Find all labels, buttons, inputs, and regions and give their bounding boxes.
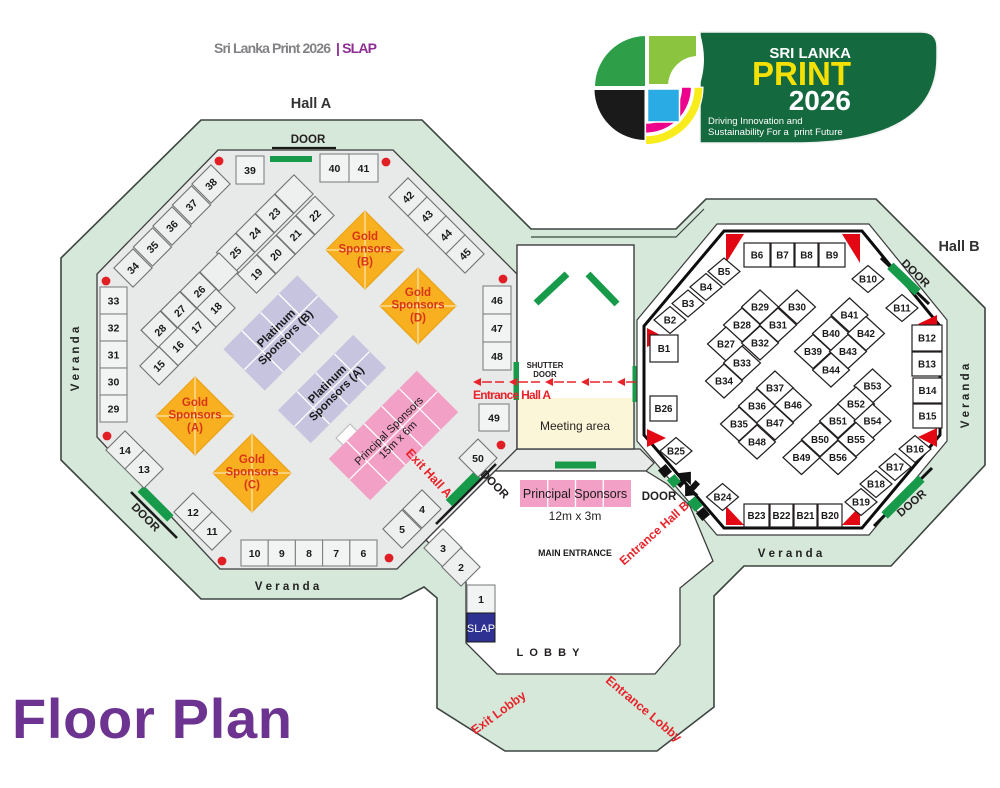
svg-text:Hall A: Hall A (291, 96, 332, 112)
svg-text:B17: B17 (886, 463, 905, 474)
svg-text:4: 4 (419, 504, 425, 516)
svg-text:B40: B40 (822, 329, 841, 340)
svg-text:B44: B44 (822, 366, 841, 377)
svg-text:2: 2 (458, 562, 464, 574)
svg-text:B36: B36 (748, 402, 767, 413)
svg-text:39: 39 (244, 165, 256, 177)
svg-text:B11: B11 (893, 304, 911, 315)
svg-text:| SLAP: | SLAP (336, 40, 377, 56)
svg-text:B29: B29 (751, 303, 770, 314)
svg-text:B41: B41 (841, 311, 860, 322)
svg-text:B2: B2 (664, 316, 677, 327)
svg-text:40: 40 (329, 163, 341, 175)
svg-text:Sustainability For a print Fu: Sustainability For a print Future (708, 127, 843, 138)
svg-text:B28: B28 (733, 321, 752, 332)
svg-text:B35: B35 (730, 420, 749, 431)
svg-text:B33: B33 (733, 359, 752, 370)
svg-text:B24: B24 (714, 493, 733, 504)
svg-text:Entrance Hall A: Entrance Hall A (473, 388, 551, 402)
svg-text:B13: B13 (918, 360, 937, 371)
svg-text:B46: B46 (784, 401, 803, 412)
svg-text:Gold: Gold (182, 397, 208, 409)
svg-text:V e r a n d a: V e r a n d a (255, 581, 320, 593)
svg-text:41: 41 (358, 163, 370, 175)
svg-text:B9: B9 (826, 251, 839, 262)
svg-text:V e r a n d a: V e r a n d a (758, 548, 823, 560)
svg-text:B16: B16 (906, 445, 925, 456)
svg-text:B43: B43 (839, 347, 858, 358)
svg-text:30: 30 (108, 376, 120, 388)
svg-text:5: 5 (399, 524, 405, 536)
svg-text:B55: B55 (847, 435, 866, 446)
svg-text:50: 50 (472, 453, 484, 465)
svg-text:3: 3 (440, 543, 446, 555)
svg-text:B50: B50 (811, 435, 830, 446)
svg-text:B49: B49 (793, 453, 812, 464)
svg-text:B53: B53 (864, 382, 883, 393)
svg-text:MAIN ENTRANCE: MAIN ENTRANCE (538, 548, 612, 558)
svg-text:12: 12 (187, 507, 199, 519)
svg-text:Meeting area: Meeting area (540, 419, 610, 433)
svg-text:1: 1 (478, 594, 484, 606)
svg-text:29: 29 (108, 403, 120, 415)
svg-text:10: 10 (249, 548, 261, 560)
svg-text:B56: B56 (829, 453, 848, 464)
svg-text:B51: B51 (829, 417, 848, 428)
svg-text:B18: B18 (867, 480, 886, 491)
svg-text:DOOR: DOOR (642, 491, 677, 503)
svg-text:Principal Sponsors: Principal Sponsors (523, 487, 627, 501)
svg-text:B32: B32 (751, 339, 770, 350)
svg-text:V e r a n d a: V e r a n d a (70, 326, 82, 391)
svg-text:B21: B21 (797, 511, 816, 522)
svg-text:B26: B26 (655, 404, 674, 415)
svg-text:6: 6 (360, 548, 366, 560)
svg-text:DOOR: DOOR (291, 134, 326, 146)
svg-text:(B): (B) (357, 257, 373, 269)
svg-text:12m x 3m: 12m x 3m (549, 509, 602, 523)
svg-text:8: 8 (306, 548, 312, 560)
svg-text:L O B B Y: L O B B Y (517, 647, 581, 659)
svg-text:11: 11 (206, 526, 217, 538)
svg-text:B37: B37 (766, 384, 785, 395)
svg-text:49: 49 (488, 412, 500, 424)
svg-text:B7: B7 (776, 251, 789, 262)
svg-text:B22: B22 (773, 511, 792, 522)
svg-text:SHUTTER: SHUTTER (527, 361, 564, 370)
svg-text:B12: B12 (918, 334, 937, 345)
svg-text:B5: B5 (718, 267, 731, 278)
svg-text:SLAP: SLAP (467, 623, 495, 635)
svg-text:B1: B1 (658, 344, 671, 355)
svg-text:9: 9 (279, 548, 285, 560)
svg-text:B42: B42 (857, 329, 876, 340)
svg-text:B30: B30 (788, 303, 807, 314)
svg-text:Sponsors: Sponsors (338, 244, 391, 256)
svg-text:Gold: Gold (352, 231, 378, 243)
svg-text:B48: B48 (748, 438, 767, 449)
svg-text:B25: B25 (667, 447, 686, 458)
svg-text:Gold: Gold (405, 287, 431, 299)
svg-text:7: 7 (333, 548, 339, 560)
svg-text:B34: B34 (715, 377, 734, 388)
svg-text:V e r a n d a: V e r a n d a (960, 363, 972, 428)
svg-text:46: 46 (491, 295, 503, 307)
svg-text:DOOR: DOOR (533, 370, 557, 379)
svg-text:Sponsors: Sponsors (391, 300, 444, 312)
svg-text:(D): (D) (410, 313, 426, 325)
svg-text:Driving Innovation and: Driving Innovation and (708, 116, 803, 127)
svg-text:B19: B19 (852, 498, 871, 509)
svg-text:B10: B10 (859, 275, 878, 286)
svg-text:B8: B8 (800, 251, 813, 262)
svg-text:48: 48 (491, 351, 503, 363)
svg-text:B23: B23 (748, 511, 767, 522)
svg-text:B6: B6 (751, 251, 764, 262)
svg-text:B20: B20 (821, 511, 840, 522)
svg-text:Gold: Gold (239, 454, 265, 466)
svg-text:33: 33 (108, 295, 120, 307)
svg-text:B39: B39 (804, 347, 823, 358)
svg-text:13: 13 (138, 464, 150, 476)
svg-text:32: 32 (108, 322, 120, 334)
svg-text:Floor Plan: Floor Plan (12, 687, 292, 750)
svg-text:B14: B14 (919, 386, 938, 397)
svg-text:Sponsors: Sponsors (225, 467, 278, 479)
svg-text:(C): (C) (244, 480, 260, 492)
svg-text:Sri Lanka Print 2026: Sri Lanka Print 2026 (214, 40, 331, 56)
svg-text:Sponsors: Sponsors (168, 410, 221, 422)
svg-text:B27: B27 (717, 340, 736, 351)
svg-text:B52: B52 (847, 400, 866, 411)
svg-text:B31: B31 (769, 321, 788, 332)
svg-text:B15: B15 (919, 412, 938, 423)
svg-text:47: 47 (491, 323, 503, 335)
svg-text:31: 31 (108, 349, 120, 361)
svg-text:B54: B54 (864, 417, 883, 428)
svg-text:14: 14 (119, 445, 131, 457)
svg-text:B4: B4 (700, 283, 713, 294)
svg-text:B3: B3 (682, 299, 695, 310)
svg-text:B47: B47 (766, 419, 785, 430)
svg-text:Hall B: Hall B (938, 239, 979, 255)
svg-text:(A): (A) (187, 423, 203, 435)
svg-text:2026: 2026 (789, 85, 851, 116)
